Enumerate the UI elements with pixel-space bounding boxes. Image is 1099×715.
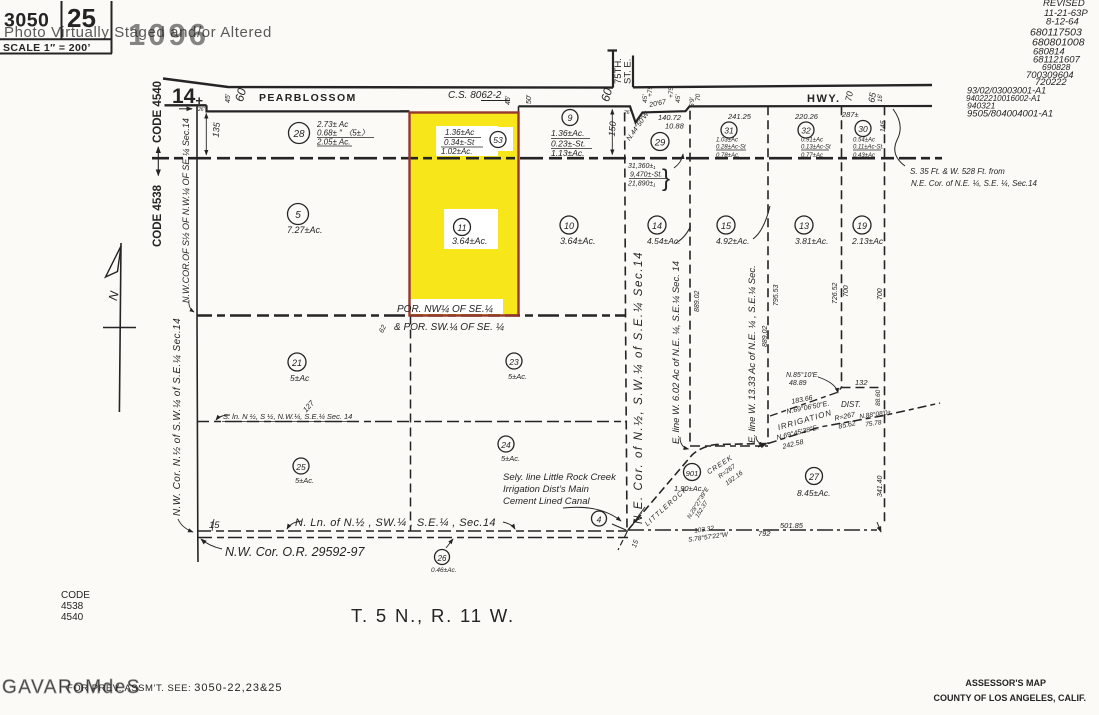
svg-text:S. ln. N ½, S ½, N.W.¼, S.E.¼: S. ln. N ½, S ½, N.W.¼, S.E.¼ Sec. 14	[223, 412, 352, 421]
svg-text:7.27±Ac.: 7.27±Ac.	[287, 225, 322, 235]
svg-text:HWY.: HWY.	[807, 93, 841, 105]
svg-text:1.03±Ac: 1.03±Ac	[716, 138, 738, 144]
svg-text:135: 135	[211, 121, 222, 138]
svg-text:4538: 4538	[61, 601, 84, 612]
svg-text:241.25: 241.25	[727, 112, 752, 121]
svg-text:0.77±Ac: 0.77±Ac	[801, 153, 823, 159]
svg-text:Irrigation Dist’s Main: Irrigation Dist’s Main	[503, 484, 589, 495]
svg-text:ST. E.: ST. E.	[623, 59, 634, 84]
svg-text:5: 5	[295, 210, 301, 221]
svg-text:48.89: 48.89	[789, 380, 807, 387]
svg-text:N.W. Cor. N.½ of S.W.¼ of S.E.: N.W. Cor. N.½ of S.W.¼ of S.E.¼ Sec.14	[171, 318, 183, 516]
svg-text:14: 14	[652, 221, 662, 231]
svg-text:E. line W. 13.33 Ac of N.E. ¼: E. line W. 13.33 Ac of N.E. ¼ , S.E.¼ Se…	[747, 265, 758, 443]
svg-text:0.23±-St.: 0.23±-St.	[551, 139, 585, 149]
svg-text:0.68± ″ 〈5±〉: 0.68± ″ 〈5±〉	[317, 129, 369, 138]
svg-text:T. 5 N., R. 11 W.: T. 5 N., R. 11 W.	[351, 605, 515, 626]
svg-text:Cement Lined Canal: Cement Lined Canal	[503, 496, 590, 507]
svg-text:30: 30	[858, 124, 868, 134]
svg-text:32: 32	[801, 126, 811, 136]
svg-text:1.13±Ac.: 1.13±Ac.	[551, 148, 585, 158]
svg-text:28: 28	[292, 129, 305, 140]
svg-text:31: 31	[724, 126, 734, 136]
svg-text:700: 700	[843, 285, 850, 297]
svg-text:9,470±-St.: 9,470±-St.	[630, 172, 662, 179]
svg-text:25: 25	[295, 462, 306, 472]
svg-text:N.85°10′E.: N.85°10′E.	[786, 371, 819, 379]
svg-text:5±Ac.: 5±Ac.	[295, 476, 314, 485]
svg-text:E. line W. 6.02 Ac of N.E. ¼,: E. line W. 6.02 Ac of N.E. ¼, S.E.¼ Sec.…	[671, 261, 682, 444]
svg-text:1.36±Ac: 1.36±Ac	[445, 128, 474, 137]
svg-text:29: 29	[654, 138, 666, 149]
svg-text:0.78±Ac.: 0.78±Ac.	[716, 153, 740, 159]
svg-text:53: 53	[493, 135, 503, 145]
svg-text:& POR. SW.¼ OF SE. ¼: & POR. SW.¼ OF SE. ¼	[394, 321, 504, 333]
svg-text:N. Ln. of N.½ , SW.¼ , S.E.¼ ,: N. Ln. of N.½ , SW.¼ , S.E.¼ , Sec.14	[295, 517, 496, 529]
svg-text:70: 70	[843, 91, 855, 103]
svg-text:0.91±Ac: 0.91±Ac	[801, 138, 823, 144]
svg-text:15: 15	[209, 520, 220, 531]
svg-text:0.46±Ac.: 0.46±Ac.	[431, 567, 457, 574]
svg-text:N.E. Cor. of N.½, S.W.¼ of S.E: N.E. Cor. of N.½, S.W.¼ of S.E.¼ Sec.14	[633, 251, 645, 524]
svg-text:+75: +75	[668, 87, 675, 98]
svg-text:26′: 26′	[623, 110, 632, 116]
svg-text:0.13±Ac-St: 0.13±Ac-St	[801, 145, 831, 151]
svg-text:795.53: 795.53	[773, 284, 780, 306]
svg-text:45′: 45′	[675, 94, 682, 103]
svg-text:21: 21	[291, 358, 302, 368]
svg-text:88.60: 88.60	[875, 389, 882, 406]
svg-text:15: 15	[721, 221, 732, 231]
svg-text:24: 24	[500, 440, 511, 450]
svg-text:ASSESSOR'S MAP: ASSESSOR'S MAP	[965, 678, 1046, 688]
svg-text:19: 19	[857, 221, 867, 231]
svg-text:DIST.: DIST.	[841, 400, 861, 409]
svg-text:3.64±Ac.: 3.64±Ac.	[560, 236, 595, 246]
svg-text:CODE 4540: CODE 4540	[152, 81, 164, 143]
svg-text:0.43±Ac: 0.43±Ac	[853, 153, 875, 159]
svg-text:S. 35 Ft. & W. 528 Ft. from: S. 35 Ft. & W. 528 Ft. from	[910, 167, 1005, 176]
svg-text:26′: 26′	[197, 107, 206, 113]
svg-text:13: 13	[799, 221, 809, 231]
svg-text:CODE 4538: CODE 4538	[152, 184, 164, 247]
svg-text:+75: +75	[647, 86, 654, 97]
svg-text:3.64±Ac.: 3.64±Ac.	[452, 236, 487, 246]
svg-text:2.13±Ac: 2.13±Ac	[851, 236, 884, 246]
svg-text:0.34±-St: 0.34±-St	[444, 138, 475, 147]
svg-text:FOR PREV. ASSM’T. SEE: 3050-22: FOR PREV. ASSM’T. SEE: 3050-22,23&25	[67, 682, 283, 694]
svg-text:4: 4	[597, 515, 602, 525]
svg-text:CODE: CODE	[61, 590, 90, 601]
svg-text:}: }	[662, 165, 670, 192]
svg-text:341.40: 341.40	[877, 475, 884, 497]
svg-text:901: 901	[686, 469, 699, 478]
svg-text:N.W.COR.OF S½ OF N.W.¼ OF SE.¼: N.W.COR.OF S½ OF N.W.¼ OF SE.¼ Sec.14	[181, 118, 191, 303]
svg-text:2.05± Ac.: 2.05± Ac.	[316, 138, 350, 147]
svg-text:889.02: 889.02	[762, 325, 769, 347]
svg-text:9505/804004001-A1: 9505/804004001-A1	[967, 109, 1053, 120]
svg-text:5±Ac.: 5±Ac.	[508, 372, 527, 381]
svg-text:132: 132	[855, 378, 868, 387]
svg-text:23: 23	[508, 357, 519, 367]
svg-text:4540: 4540	[61, 612, 84, 623]
svg-text:N.E. Cor. of N.E. ¼, S.E. ¼, S: N.E. Cor. of N.E. ¼, S.E. ¼, Sec.14	[911, 179, 1038, 188]
svg-text:SCALE 1″ = 200’: SCALE 1″ = 200’	[3, 42, 91, 54]
svg-text:0.28±Ac-St: 0.28±Ac-St	[716, 145, 746, 151]
svg-text:10.88: 10.88	[665, 122, 685, 131]
svg-text:21,890±₁: 21,890±₁	[627, 181, 656, 188]
svg-text:700: 700	[877, 288, 884, 300]
svg-text:150: 150	[607, 121, 618, 137]
svg-text:0.54±Ac: 0.54±Ac	[853, 138, 875, 144]
svg-text:1096: 1096	[128, 17, 209, 52]
svg-text:45′: 45′	[505, 95, 512, 105]
svg-text:4.54±Ac.: 4.54±Ac.	[647, 236, 681, 246]
svg-text:4.92±Ac.: 4.92±Ac.	[716, 236, 750, 246]
svg-text:792: 792	[758, 529, 771, 538]
svg-text:9: 9	[567, 113, 572, 123]
svg-text:10: 10	[564, 221, 574, 231]
svg-text:726.52: 726.52	[832, 282, 839, 304]
svg-text:5±Ac: 5±Ac	[290, 373, 310, 383]
svg-text:1.02±Ac.: 1.02±Ac.	[441, 147, 473, 156]
svg-text:11: 11	[457, 223, 466, 233]
svg-text:27: 27	[808, 472, 820, 482]
svg-text:0.11±Ac-St.: 0.11±Ac-St.	[853, 145, 884, 151]
svg-text:PEARBLOSSOM: PEARBLOSSOM	[259, 92, 357, 104]
svg-text:5±Ac.: 5±Ac.	[501, 454, 520, 463]
svg-text:C.S. 8062-2: C.S. 8062-2	[448, 90, 502, 101]
svg-text:26: 26	[437, 554, 447, 563]
svg-text:889.02: 889.02	[694, 290, 701, 312]
svg-text:31,360±₁: 31,360±₁	[628, 163, 656, 170]
svg-text:220.26: 220.26	[794, 112, 819, 121]
svg-text:287±: 287±	[841, 110, 859, 119]
svg-text:3.81±Ac.: 3.81±Ac.	[795, 236, 829, 246]
svg-text:145: 145	[880, 120, 887, 132]
svg-text:50′: 50′	[526, 94, 533, 104]
svg-text:Sely. line Little Rock Creek: Sely. line Little Rock Creek	[503, 472, 617, 483]
svg-text:1.36±Ac.: 1.36±Ac.	[551, 128, 585, 138]
svg-text:16′: 16′	[878, 93, 884, 102]
svg-text:501.85: 501.85	[780, 521, 804, 530]
svg-text:POR. NW¼ OF SE.¼: POR. NW¼ OF SE.¼	[397, 303, 493, 315]
svg-text:45′: 45′	[225, 93, 232, 103]
svg-text:70: 70	[695, 93, 702, 101]
svg-text:8.45±Ac.: 8.45±Ac.	[797, 488, 831, 498]
svg-text:COUNTY OF LOS ANGELES, CALIF.: COUNTY OF LOS ANGELES, CALIF.	[933, 693, 1086, 703]
svg-text:N.W. Cor. O.R. 29592-97: N.W. Cor. O.R. 29592-97	[225, 545, 365, 559]
